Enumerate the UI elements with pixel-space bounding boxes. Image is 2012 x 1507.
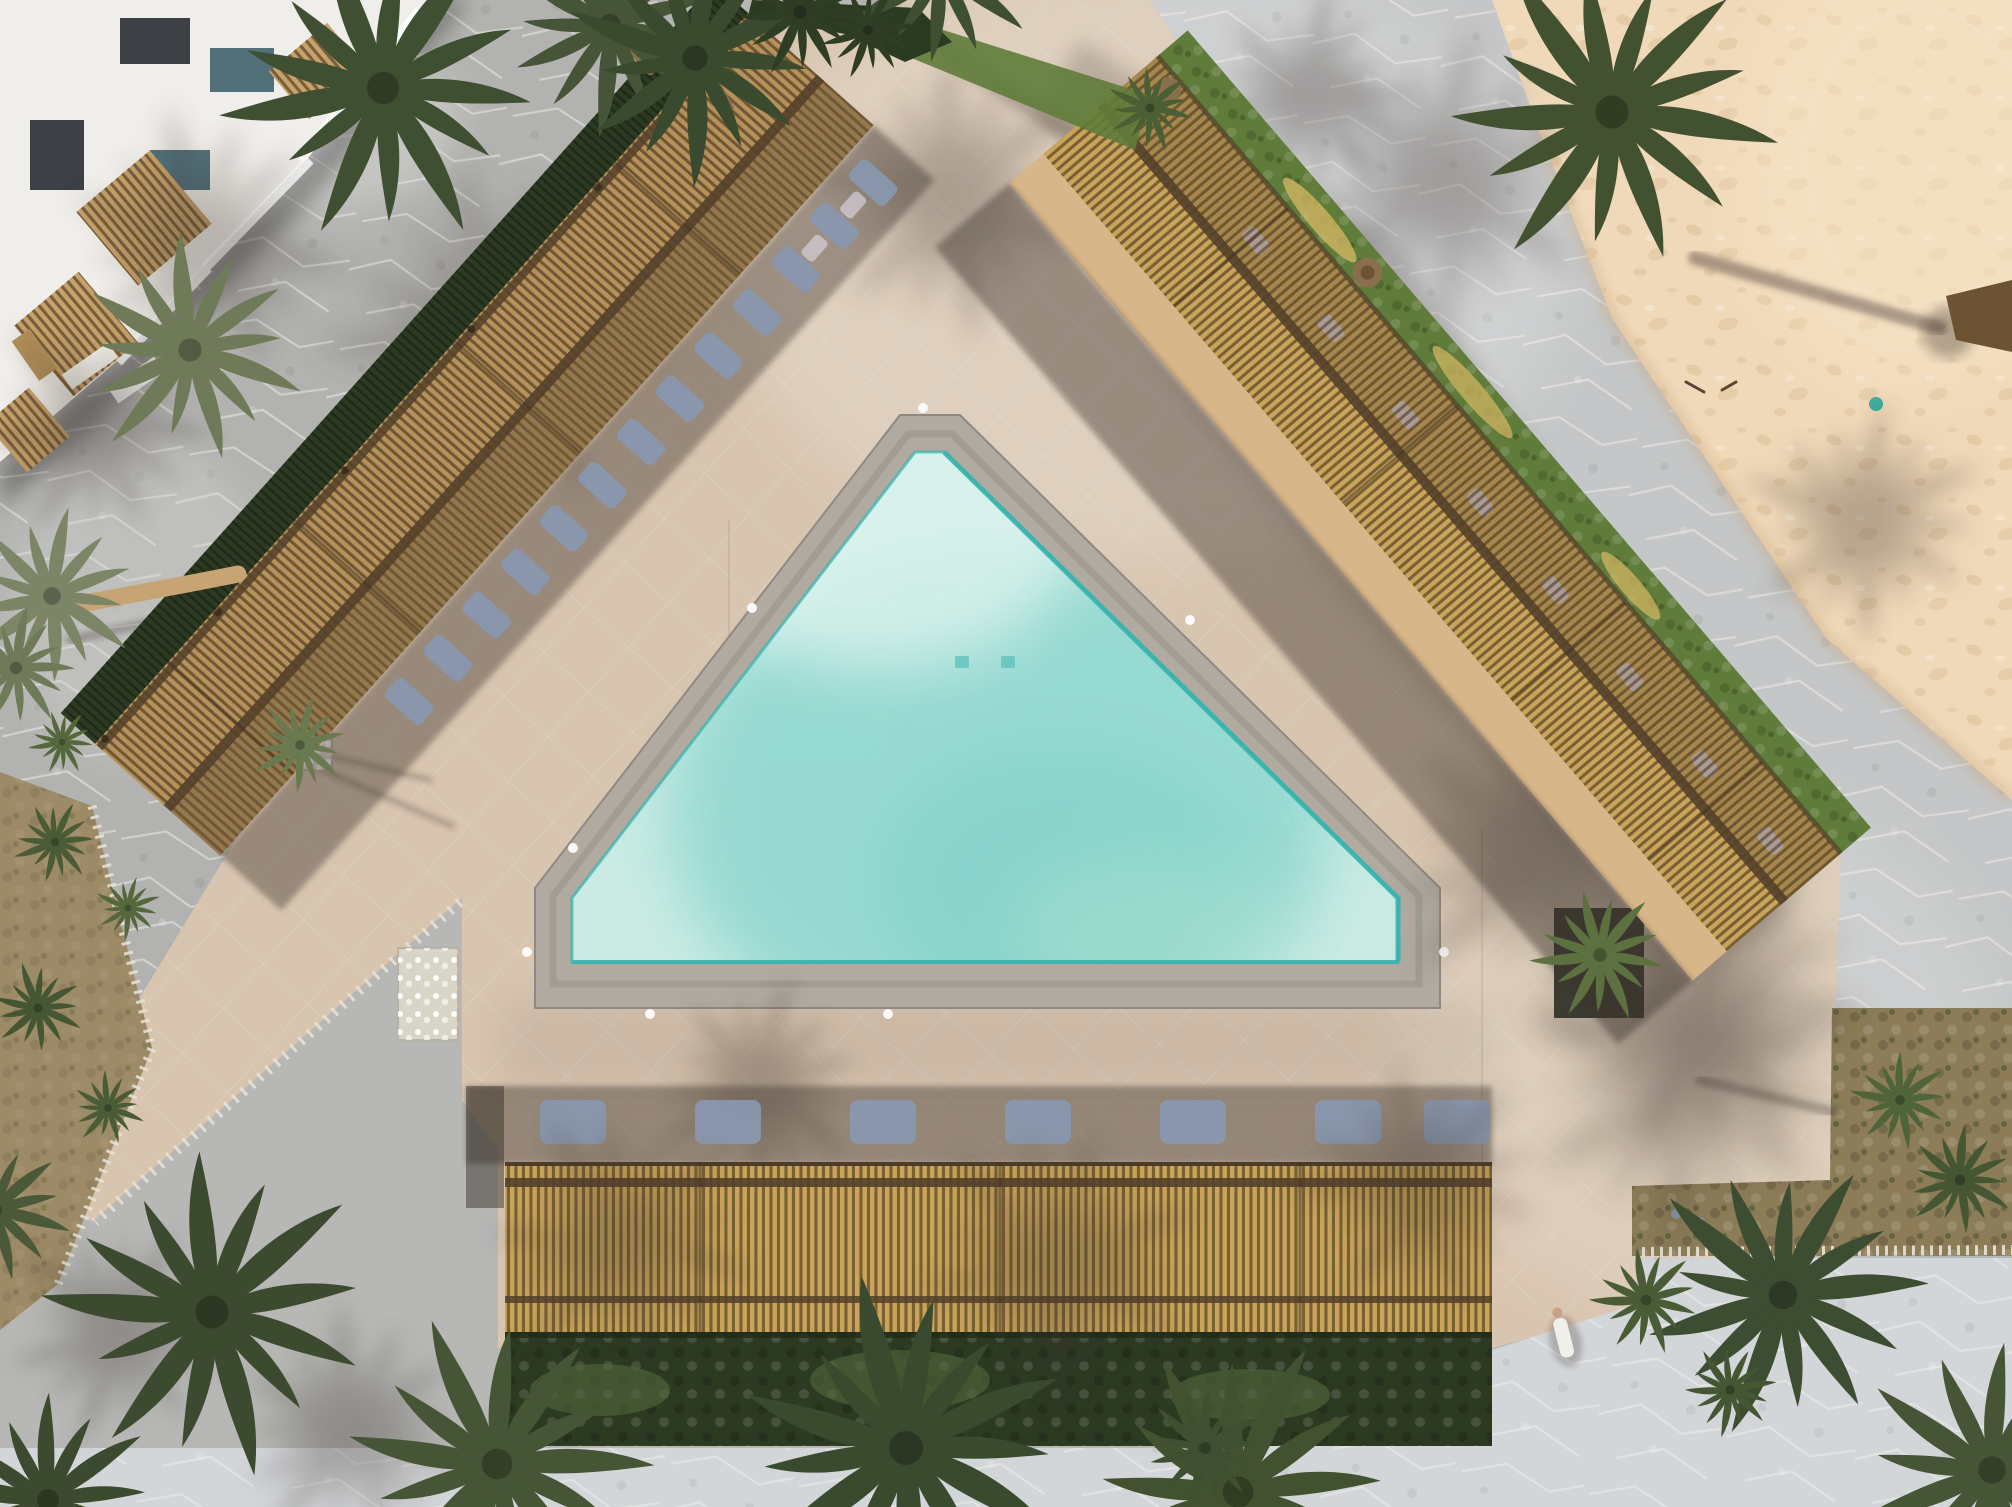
- aerial-photo: Top-down drone view of a pentagonal turq…: [0, 0, 2012, 1507]
- pebble-planter: [398, 948, 458, 1040]
- building-window: [30, 120, 84, 190]
- teal-item: [1869, 397, 1883, 411]
- aerial-photo-stage: Top-down drone view of a pentagonal turq…: [0, 0, 2012, 1507]
- building-window: [120, 18, 190, 64]
